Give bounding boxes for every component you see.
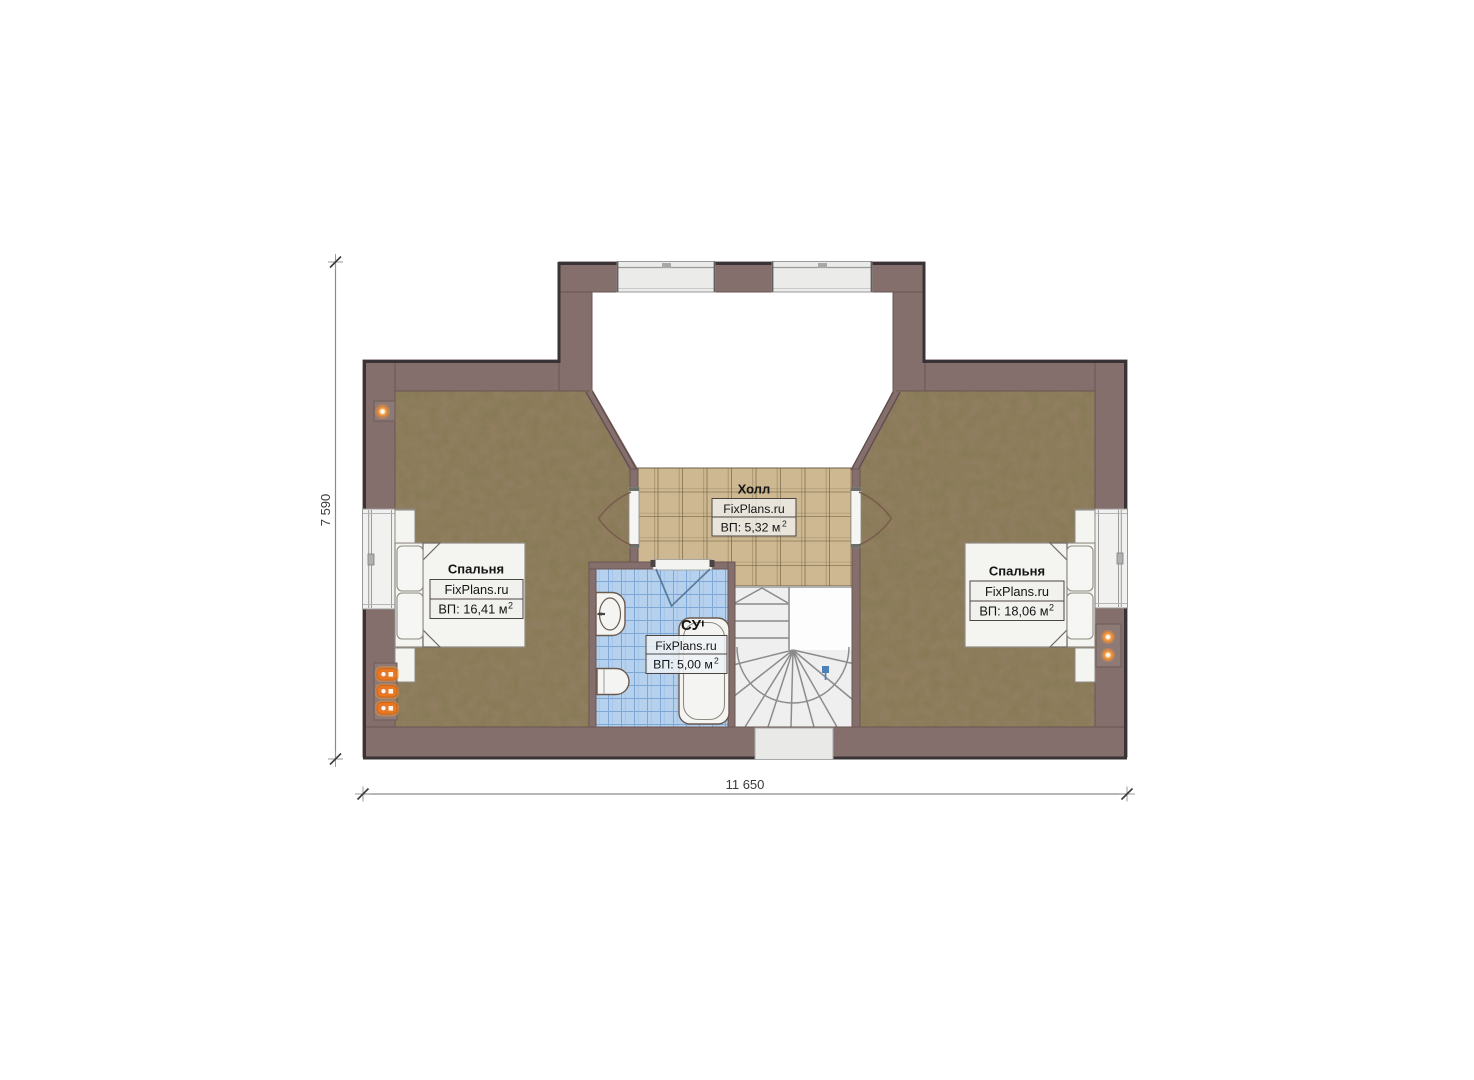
- svg-text:7 590: 7 590: [318, 494, 333, 527]
- svg-text:Спальня: Спальня: [989, 564, 1045, 579]
- svg-text:ВП: 5,32 м: ВП: 5,32 м: [721, 521, 781, 535]
- svg-text:FixPlans.ru: FixPlans.ru: [985, 584, 1049, 599]
- svg-text:2: 2: [782, 519, 787, 529]
- svg-text:FixPlans.ru: FixPlans.ru: [655, 639, 717, 653]
- svg-text:11 650: 11 650: [726, 777, 765, 792]
- svg-text:2: 2: [714, 656, 719, 666]
- svg-text:2: 2: [1049, 603, 1054, 613]
- svg-text:FixPlans.ru: FixPlans.ru: [723, 502, 785, 516]
- svg-text:ВП: 5,00 м: ВП: 5,00 м: [653, 658, 713, 672]
- svg-text:Спальня: Спальня: [448, 562, 504, 577]
- svg-text:Холл: Холл: [738, 482, 771, 497]
- svg-text:FixPlans.ru: FixPlans.ru: [444, 582, 508, 597]
- svg-text:ВП: 18,06 м: ВП: 18,06 м: [979, 604, 1048, 619]
- svg-text:2: 2: [508, 601, 513, 611]
- svg-text:ВП: 16,41 м: ВП: 16,41 м: [438, 602, 507, 617]
- svg-text:СУ: СУ: [681, 617, 702, 634]
